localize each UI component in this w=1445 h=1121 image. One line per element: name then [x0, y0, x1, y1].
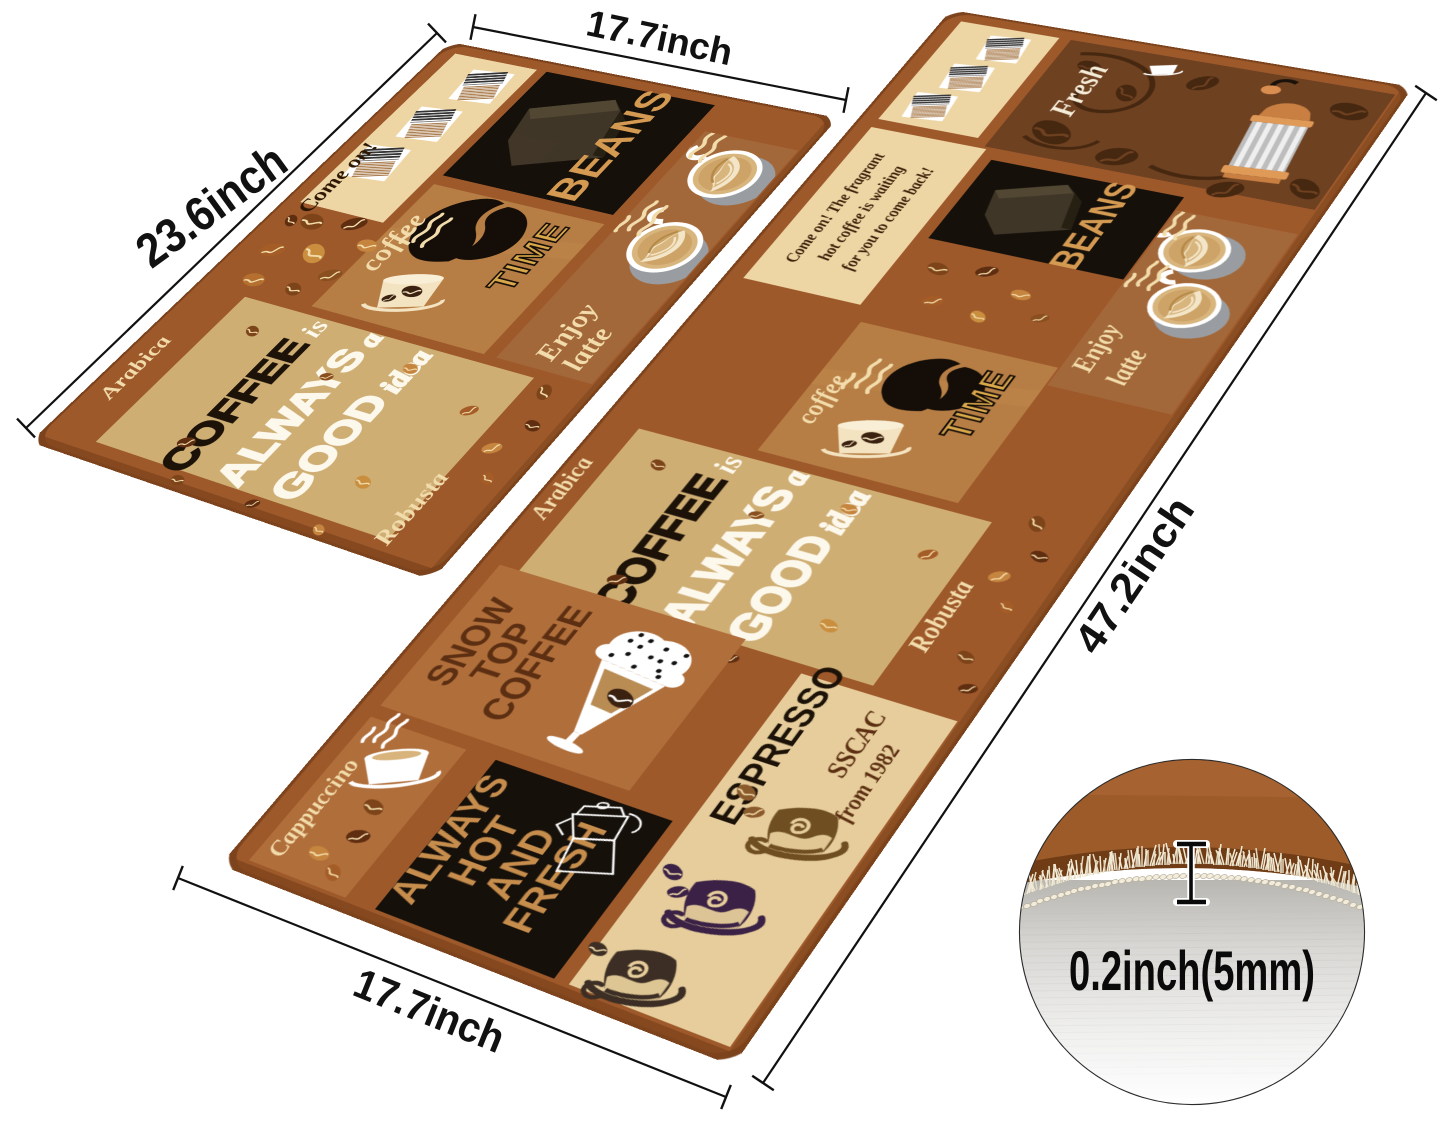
svg-text:17.7inch: 17.7inch	[347, 959, 511, 1062]
svg-text:0.2inch(5mm): 0.2inch(5mm)	[1069, 939, 1315, 1002]
svg-text:23.6inch: 23.6inch	[127, 134, 297, 278]
svg-text:47.2inch: 47.2inch	[1065, 488, 1204, 662]
